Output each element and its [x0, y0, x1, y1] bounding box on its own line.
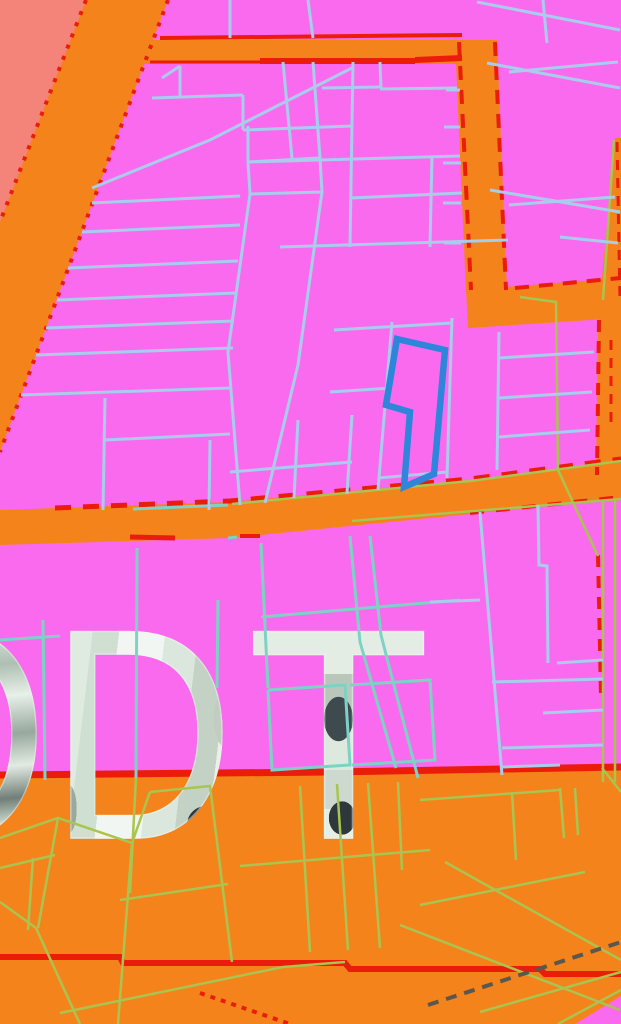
parcel-lines-blue-segment [350, 62, 353, 247]
parcel-lines-teal-segment [268, 685, 350, 770]
parcel-lines-olive-segment [0, 792, 150, 843]
parcel-lines-teal-segment [217, 600, 218, 688]
parcel-lines-olive-segment [118, 843, 132, 1024]
parcel-lines-blue-segment [322, 87, 380, 88]
parcel-lines-blue-segment [105, 434, 230, 440]
parcel-lines-olive-segment [420, 872, 585, 905]
parcel-lines-teal-segment [0, 636, 60, 640]
parcel-lines-olive-segment [520, 297, 558, 470]
parcel-lines-blue-segment [447, 318, 452, 478]
parcel-lines-olive-segment [400, 925, 620, 1010]
railway-dashed-segment [428, 942, 621, 1005]
railway-dashed [428, 942, 621, 1005]
parcel-lines-blue-segment [509, 197, 615, 205]
parcel-lines-olive-segment [300, 786, 310, 952]
parcel-lines-blue-segment [313, 62, 320, 158]
parcel-lines-olive-segment [480, 972, 621, 1012]
parcel-lines-blue-segment [538, 505, 548, 663]
parcel-lines-teal [0, 505, 460, 780]
parcel-lines-olive-segment [60, 962, 345, 1013]
parcel-lines-blue-segment [509, 62, 618, 72]
parcel-lines-blue-segment [497, 332, 499, 470]
parcel-lines-blue-segment [209, 440, 210, 510]
parcel-lines-blue-segment [543, 0, 547, 43]
map-parcel-lines-layer [0, 0, 621, 1024]
parcel-lines-blue-segment [430, 600, 480, 602]
parcel-lines-olive-segment [512, 792, 516, 860]
parcel-lines-olive-segment [420, 790, 560, 800]
parcel-lines-blue-segment [230, 462, 352, 472]
highlighted-parcel[interactable] [386, 339, 445, 487]
zoning-map-canvas[interactable]: ODT [0, 0, 621, 1024]
parcel-lines-blue-segment [477, 2, 620, 30]
parcel-lines-teal-segment [136, 548, 137, 778]
parcel-lines-blue-segment [380, 88, 457, 89]
parcel-lines-olive-segment [602, 768, 621, 792]
parcel-lines-blue-segment [152, 95, 243, 98]
parcel-lines-olive-segment [38, 818, 58, 928]
parcel-lines-olive-segment [558, 470, 598, 556]
parcel-lines-blue-segment [502, 745, 603, 748]
parcel-lines-olive-segment [603, 140, 614, 300]
parcel-lines-blue-segment [543, 710, 603, 713]
parcel-lines-blue-segment [103, 398, 105, 510]
parcel-lines-teal-segment [43, 620, 45, 780]
parcel-lines-blue-segment [308, 0, 313, 38]
parcel-lines-blue-segment [82, 225, 240, 232]
parcel-lines-blue-segment [380, 62, 381, 88]
parcel-lines-blue-segment [248, 158, 322, 194]
parcel-lines-teal-segment [133, 505, 228, 509]
parcel-lines-blue-segment [283, 62, 292, 158]
parcel-lines-olive-segment [28, 858, 33, 930]
parcel-lines-olive-segment [575, 788, 578, 835]
parcel-lines-olive-segment [120, 884, 228, 900]
parcel-lines-blue-segment [502, 765, 560, 767]
parcel-lines-blue-segment [57, 293, 236, 300]
parcel-lines-teal-segment [370, 536, 418, 778]
parcel-lines-blue [21, 0, 620, 775]
parcel-lines-blue-segment [480, 512, 502, 775]
parcel-lines-blue-segment [430, 156, 432, 247]
parcel-lines-olive-segment [560, 788, 564, 838]
parcel-lines-blue-segment [557, 660, 603, 663]
parcel-lines-blue-segment [499, 430, 590, 437]
parcel-lines-olive-segment [0, 855, 55, 868]
parcel-lines-blue-segment [347, 415, 352, 494]
parcel-lines-olive-segment [150, 786, 232, 962]
parcel-lines-olive-segment [368, 783, 380, 948]
parcel-lines-blue-segment [46, 321, 234, 328]
parcel-lines-blue-segment [243, 126, 353, 130]
parcel-lines-blue-segment [492, 679, 603, 682]
parcel-lines-blue-segment [330, 388, 392, 392]
parcel-lines-blue-segment [265, 192, 322, 503]
parcel-lines-teal-segment [228, 537, 237, 538]
parcel-lines-blue-segment [294, 420, 298, 498]
parcel-lines-blue-segment [68, 261, 238, 268]
parcel-lines-blue-segment [92, 196, 240, 203]
parcel-lines-olive-segment [337, 784, 348, 950]
parcel-lines-blue-segment [499, 352, 594, 358]
parcel-lines-blue-segment [162, 66, 180, 78]
parcel-lines-blue-segment [36, 348, 233, 355]
parcel-lines-blue-segment [21, 388, 231, 395]
parcel-lines-blue-segment [350, 193, 462, 198]
parcel-lines-olive-segment [398, 782, 402, 870]
parcel-lines-blue-segment [499, 392, 592, 398]
parcel-lines-blue-segment [560, 237, 618, 243]
parcel-lines-olive-segment [445, 862, 621, 960]
